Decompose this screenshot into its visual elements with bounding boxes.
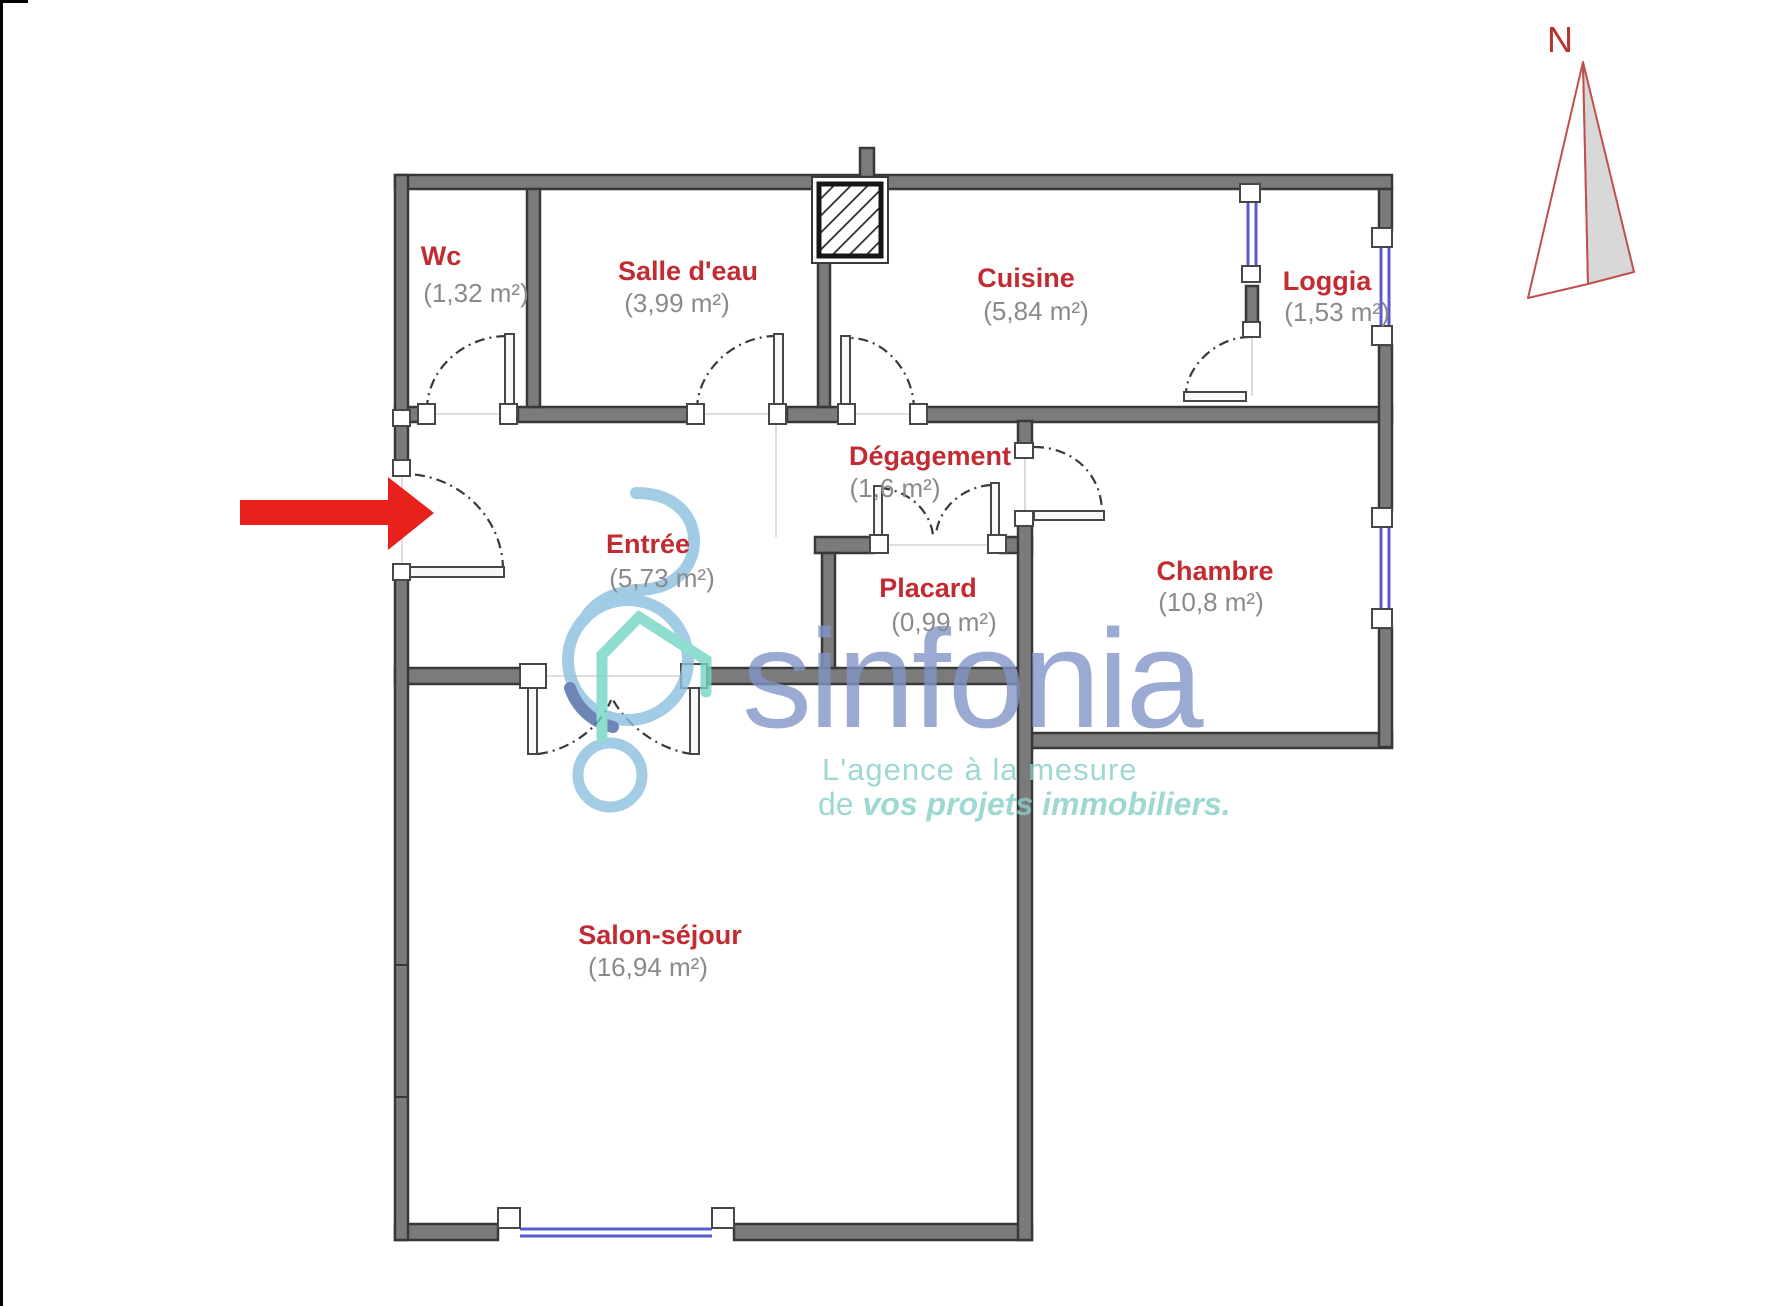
room-label-salon: Salon-séjour — [578, 920, 742, 950]
floor-plan-page: N sinfonia L'agence à la mesure de vos p… — [0, 0, 1772, 1306]
room-area-entree: (5,73 m²) — [609, 563, 714, 593]
brand-tagline-line2: de vos projets immobiliers. — [818, 786, 1231, 822]
north-label: N — [1547, 19, 1573, 60]
room-label-wc: Wc — [421, 241, 462, 271]
tagline-prefix: de — [818, 786, 862, 822]
duct-shaft — [812, 177, 888, 263]
floor-plan-drawing: N sinfonia L'agence à la mesure de vos p… — [0, 0, 1772, 1306]
room-area-cuisine: (5,84 m²) — [983, 296, 1088, 326]
room-label-placard: Placard — [879, 573, 977, 603]
room-area-wc: (1,32 m²) — [423, 278, 528, 308]
room-area-salle-deau: (3,99 m²) — [624, 288, 729, 318]
north-compass-icon: N — [1528, 19, 1634, 298]
room-area-labels: (1,32 m²) (3,99 m²) (5,84 m²) (1,53 m²) … — [423, 278, 1389, 982]
room-area-salon: (16,94 m²) — [588, 952, 708, 982]
room-area-loggia: (1,53 m²) — [1284, 297, 1389, 327]
room-label-degagement: Dégagement — [849, 441, 1011, 471]
tagline-emphasis: vos projets immobiliers. — [862, 786, 1230, 822]
page-edge-border — [0, 0, 28, 1306]
room-label-chambre: Chambre — [1156, 556, 1273, 586]
room-area-placard: (0,99 m²) — [891, 607, 996, 637]
room-area-degagement: (1,6 m²) — [850, 473, 941, 503]
room-area-chambre: (10,8 m²) — [1158, 587, 1263, 617]
room-label-entree: Entrée — [606, 529, 690, 559]
room-label-loggia: Loggia — [1283, 266, 1372, 296]
room-label-salle-deau: Salle d'eau — [618, 256, 758, 286]
brand-tagline-line1: L'agence à la mesure — [822, 752, 1137, 787]
room-label-cuisine: Cuisine — [977, 263, 1075, 293]
entrance-arrow-icon — [240, 477, 434, 550]
